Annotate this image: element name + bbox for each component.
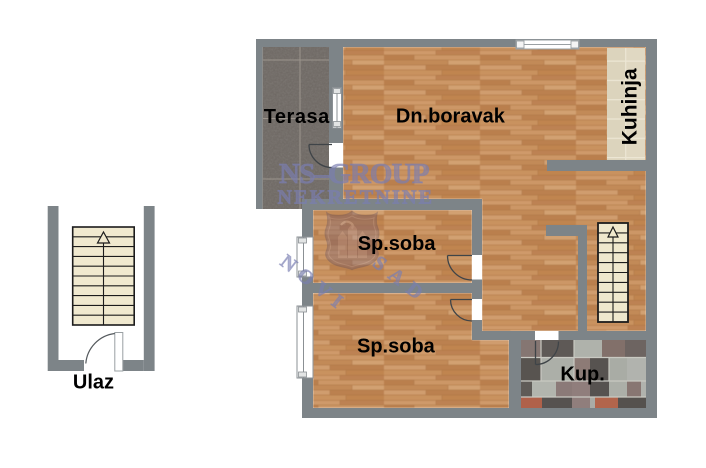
svg-text:Sp.soba: Sp.soba — [357, 336, 436, 358]
svg-text:Terasa: Terasa — [264, 106, 330, 128]
svg-text:NEKRETNINE: NEKRETNINE — [278, 187, 434, 209]
svg-text:Sp.soba: Sp.soba — [358, 233, 437, 255]
svg-text:Ulaz: Ulaz — [73, 371, 114, 393]
svg-text:NS–GROUP: NS–GROUP — [279, 158, 431, 190]
svg-text:Kuhinja: Kuhinja — [619, 68, 642, 145]
svg-text:Dn.boravak: Dn.boravak — [396, 105, 506, 127]
svg-text:Kup.: Kup. — [560, 363, 604, 385]
